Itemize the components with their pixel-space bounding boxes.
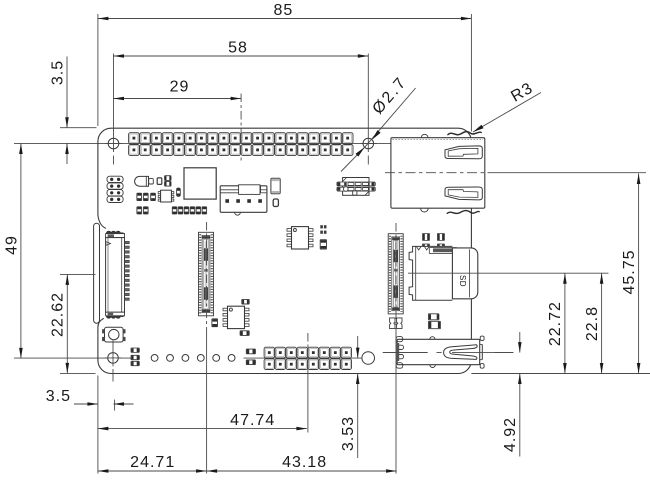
svg-text:22.72: 22.72	[547, 301, 564, 346]
svg-text:47.74: 47.74	[230, 412, 275, 429]
svg-text:45.75: 45.75	[621, 249, 638, 294]
svg-text:22.8: 22.8	[584, 306, 601, 341]
svg-text:3.5: 3.5	[50, 60, 67, 85]
svg-text:3.53: 3.53	[340, 416, 357, 451]
svg-text:58: 58	[228, 39, 248, 56]
svg-text:49: 49	[4, 235, 21, 255]
svg-text:85: 85	[274, 2, 294, 19]
svg-text:29: 29	[170, 79, 190, 96]
svg-text:22.62: 22.62	[50, 292, 67, 337]
svg-text:24.71: 24.71	[130, 454, 175, 471]
svg-text:SD: SD	[458, 275, 467, 287]
svg-text:4.92: 4.92	[502, 417, 519, 452]
svg-text:43.18: 43.18	[282, 454, 327, 471]
svg-text:3.5: 3.5	[46, 388, 71, 405]
